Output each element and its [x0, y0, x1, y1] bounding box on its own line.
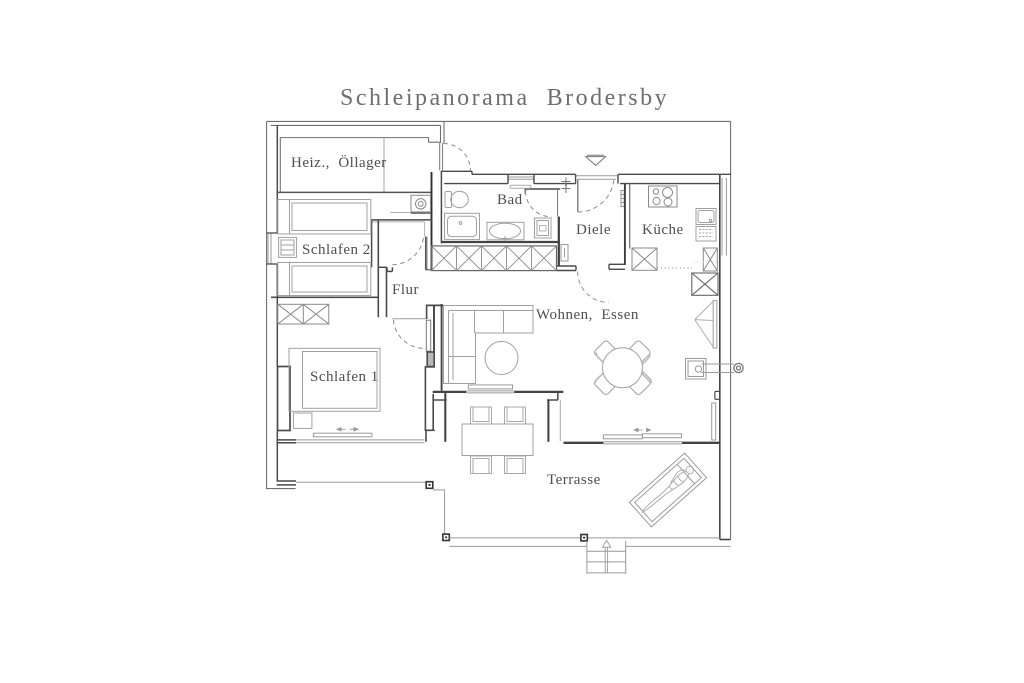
svg-text:Flur: Flur: [392, 282, 419, 298]
svg-text:Terrasse: Terrasse: [547, 472, 601, 488]
svg-text:Bad: Bad: [497, 192, 523, 208]
svg-text:Küche: Küche: [642, 222, 684, 238]
svg-text:Wohnen, Essen: Wohnen, Essen: [536, 307, 639, 323]
svg-text:Heiz., Öllager: Heiz., Öllager: [291, 154, 387, 171]
svg-text:Diele: Diele: [576, 222, 611, 238]
svg-text:Schleipanorama Brodersby: Schleipanorama Brodersby: [340, 85, 669, 111]
svg-text:Schlafen 1: Schlafen 1: [310, 369, 379, 385]
svg-text:Schlafen 2: Schlafen 2: [302, 242, 371, 258]
